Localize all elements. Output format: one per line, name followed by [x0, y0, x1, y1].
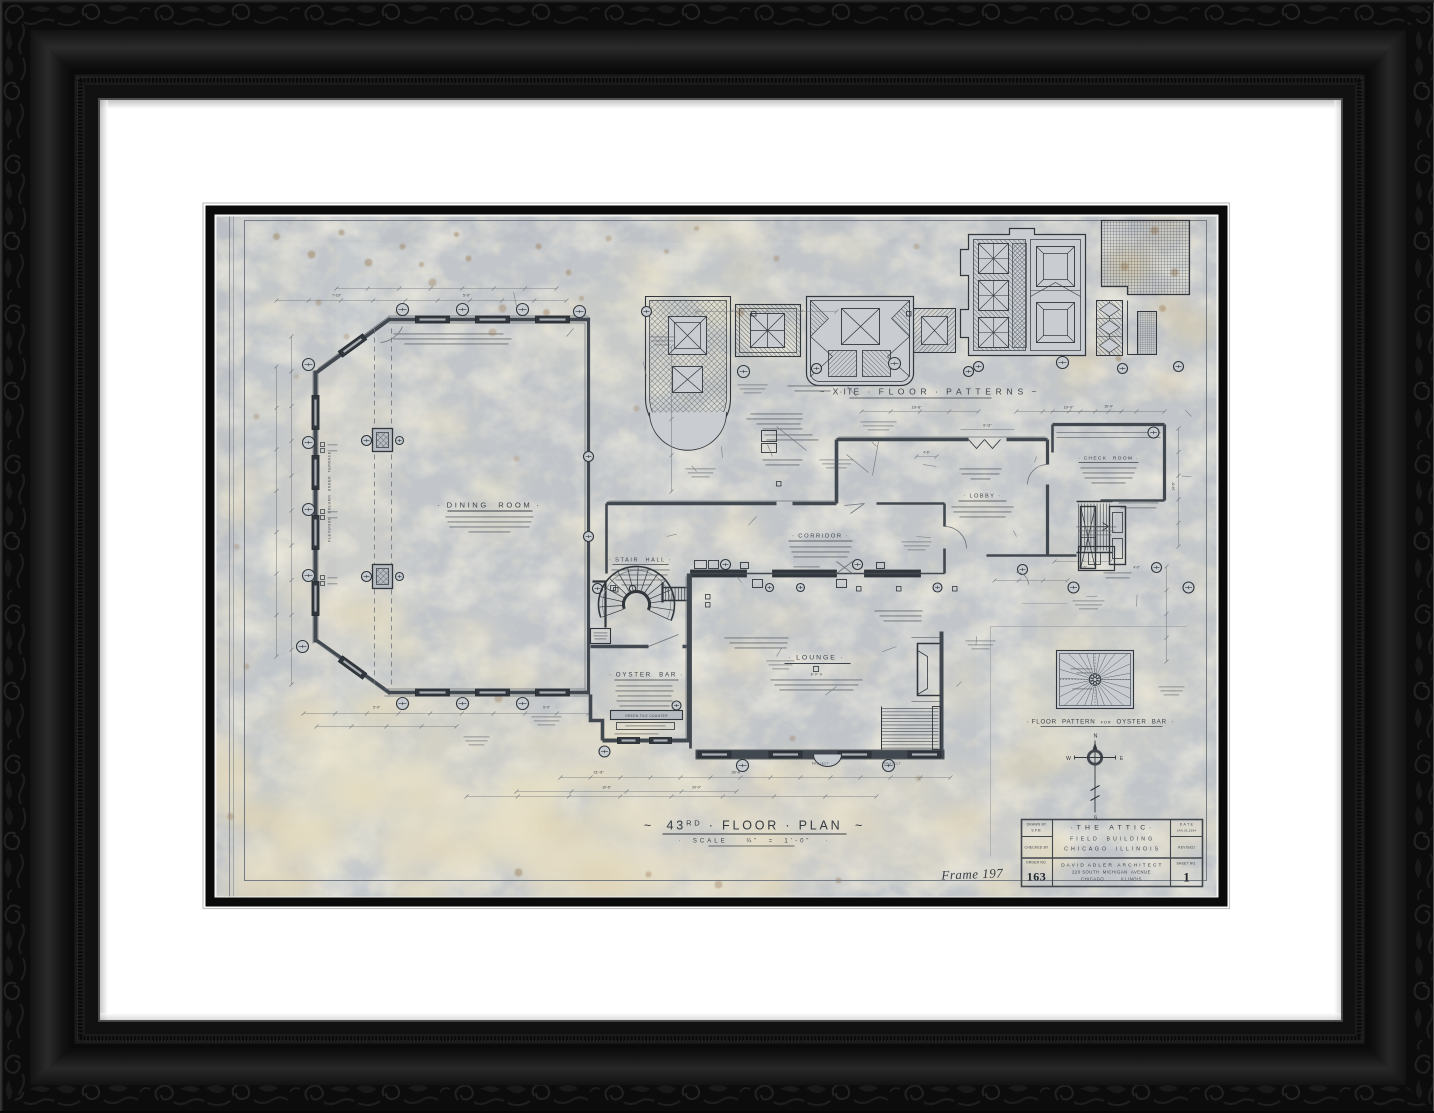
svg-text:CHICAGO ILLINOIS: CHICAGO ILLINOIS [1081, 877, 1142, 882]
svg-text:7'-10”: 7'-10” [332, 294, 342, 298]
svg-text:GREEN TILE COUNTER: GREEN TILE COUNTER [625, 714, 668, 718]
svg-text:C H I C A G O I L L I N O I: C H I C A G O I L L I N O I S [1064, 847, 1159, 853]
svg-text:· STAIR HALL ·: · STAIR HALL · [609, 558, 672, 564]
svg-text:21'-9”: 21'-9” [593, 770, 604, 775]
svg-text:N: N [1094, 734, 1098, 740]
svg-text:19'-0”: 19'-0” [1063, 405, 1074, 410]
svg-text:· OYSTER BAR ·: · OYSTER BAR · [609, 672, 684, 679]
svg-text:6'-11”: 6'-11” [983, 424, 992, 428]
svg-text:15'-4”: 15'-4” [1104, 405, 1114, 409]
svg-text:· T H E A T T I C ·: · T H E A T T I C · [1071, 825, 1153, 832]
svg-text:· DINING ROOM ·: · DINING ROOM · [437, 501, 541, 510]
svg-text:SHEET NO.: SHEET NO. [1176, 862, 1196, 866]
svg-text:· LOBBY ·: · LOBBY · [963, 494, 1001, 500]
svg-text:220 SOUTH MICHIGAN AVENUE: 220 SOUTH MICHIGAN AVENUE [1072, 870, 1151, 875]
svg-text:1: 1 [1183, 870, 1190, 885]
svg-text:4'-6”: 4'-6” [923, 451, 929, 455]
svg-text:8'-0” H: 8'-0” H [811, 673, 823, 677]
svg-text:REVISED: REVISED [1178, 846, 1195, 850]
svg-text:D A T E: D A T E [1180, 823, 1194, 827]
svg-text:PROJECT: PROJECT [812, 762, 830, 766]
svg-text:~ 43RD · FLOOR · PLAN ~: ~ 43RD · FLOOR · PLAN ~ [644, 819, 865, 833]
svg-text:W: W [1066, 756, 1071, 762]
svg-text:S: S [1094, 816, 1098, 822]
svg-text:163: 163 [1027, 870, 1047, 884]
svg-text:10'-6”: 10'-6” [602, 786, 612, 790]
svg-text:10'-6”: 10'-6” [1078, 566, 1086, 570]
svg-text:PROJECT: PROJECT [884, 762, 902, 766]
svg-text:19'-6”: 19'-6” [911, 405, 922, 410]
svg-text:CHECKED BY: CHECKED BY [1024, 846, 1049, 850]
svg-text:· CHECK ROOM ·: · CHECK ROOM · [1078, 456, 1139, 462]
svg-text:FLEXWOOD COLUMN UNDER TERRA: FLEXWOOD COLUMN UNDER TERRACE [328, 451, 332, 541]
svg-text:20'-6”: 20'-6” [731, 770, 742, 775]
svg-text:· SCALE ¼” = 1’-0” ·: · SCALE ¼” = 1’-0” · [679, 839, 831, 845]
svg-text:· FLOOR PATTERN FOR OYSTER: · FLOOR PATTERN FOR OYSTER BAR · [1027, 719, 1175, 726]
svg-text:JAN 31,1934: JAN 31,1934 [1177, 829, 1197, 833]
svg-text:F I E L D B U I L D I N G: F I E L D B U I L D I N G [1070, 837, 1153, 843]
svg-text:4'-0”: 4'-0” [1133, 566, 1139, 570]
svg-text:· LOUNGE ·: · LOUNGE · [789, 655, 845, 662]
svg-text:14'-6”: 14'-6” [1172, 481, 1176, 491]
svg-text:20'-0”: 20'-0” [692, 786, 702, 790]
svg-text:Frame 197: Frame 197 [940, 865, 1003, 882]
svg-text:5'-0”: 5'-0” [543, 706, 551, 710]
svg-text:DRAWN BY: DRAWN BY [1027, 823, 1047, 827]
svg-text:D A V I D A D L E R A R C H: D A V I D A D L E R A R C H I T E C T [1061, 863, 1162, 869]
svg-text:5'-0”: 5'-0” [373, 706, 381, 710]
svg-text:5'-0”: 5'-0” [463, 294, 471, 298]
svg-text:· CORRIDOR ·: · CORRIDOR · [792, 534, 849, 540]
svg-text:ORDER NO.: ORDER NO. [1026, 861, 1047, 865]
svg-text:S.P.M.: S.P.M. [1031, 829, 1041, 833]
